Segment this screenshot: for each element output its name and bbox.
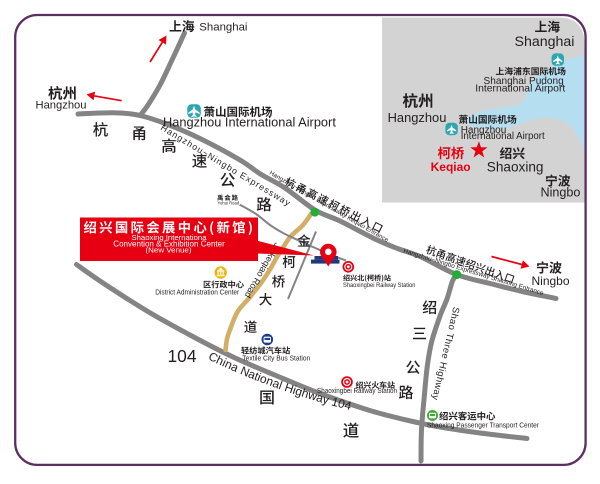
svg-text:Shanghai: Shanghai (199, 22, 247, 34)
svg-text:Ningbo: Ningbo (532, 274, 570, 288)
svg-text:District Administration Center: District Administration Center (155, 288, 239, 297)
svg-text:Shaoxing Passenger Transport C: Shaoxing Passenger Transport Center (427, 420, 540, 429)
svg-text:Shaoxingbei Railway Station: Shaoxingbei Railway Station (343, 282, 416, 289)
svg-text:Shanghai: Shanghai (515, 34, 575, 50)
svg-text:Hangzhou~Ningbo Expressway Sha: Hangzhou~Ningbo Expressway Shaoxing Entr… (402, 248, 544, 298)
svg-text:Hangzhou International Airport: Hangzhou International Airport (163, 115, 336, 130)
svg-text:Hangzhou: Hangzhou (36, 99, 87, 111)
svg-text:Keqiao: Keqiao (431, 160, 471, 174)
svg-text:Shaoxing: Shaoxing (487, 160, 544, 175)
svg-text:International Airport: International Airport (461, 131, 545, 142)
svg-text:Hangzhou~Ningbo Expressway: Hangzhou~Ningbo Expressway (159, 122, 293, 208)
svg-text:Shao Three Highway: Shao Three Highway (430, 306, 462, 402)
svg-text:Hangzhou: Hangzhou (388, 110, 447, 125)
svg-text:(New Venue): (New Venue) (146, 246, 192, 255)
svg-text:International Airport: International Airport (475, 83, 565, 94)
svg-text:Textile City Bus Station: Textile City Bus Station (242, 353, 310, 362)
svg-text:104: 104 (168, 346, 197, 366)
svg-text:Yuhui Road: Yuhui Road (218, 201, 240, 206)
svg-text:Ningbo: Ningbo (541, 185, 581, 199)
svg-text:Shaoxingbei Railway Station: Shaoxingbei Railway Station (317, 386, 397, 395)
